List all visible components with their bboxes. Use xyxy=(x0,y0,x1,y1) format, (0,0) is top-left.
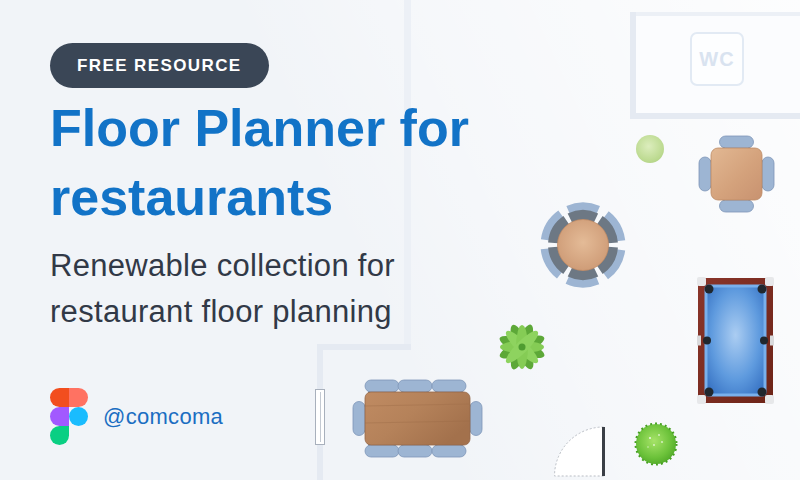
page-title-line1: Floor Planner for xyxy=(50,94,469,163)
page-subtitle: Renewable collection for restaurant floo… xyxy=(50,243,395,335)
page-background: WC xyxy=(0,0,800,480)
figma-logo-red-cell xyxy=(50,388,69,407)
free-resource-badge: FREE RESOURCE xyxy=(50,43,269,88)
hero-content: FREE RESOURCE Floor Planner for restaura… xyxy=(0,0,800,480)
figma-logo-blue-cell xyxy=(69,407,88,426)
attribution: @comcoma xyxy=(50,388,223,445)
figma-logo-salmon-cell xyxy=(69,388,88,407)
page-title-line2: restaurants xyxy=(50,163,469,232)
page-subtitle-line1: Renewable collection for xyxy=(50,243,395,289)
free-resource-badge-label: FREE RESOURCE xyxy=(77,56,242,76)
page-title: Floor Planner for restaurants xyxy=(50,94,469,232)
figma-logo-purple-cell xyxy=(50,407,69,426)
attribution-handle: @comcoma xyxy=(103,404,223,430)
page-subtitle-line2: restaurant floor planning xyxy=(50,289,395,335)
figma-logo-icon xyxy=(50,388,88,445)
figma-logo-green-cell xyxy=(50,426,69,445)
